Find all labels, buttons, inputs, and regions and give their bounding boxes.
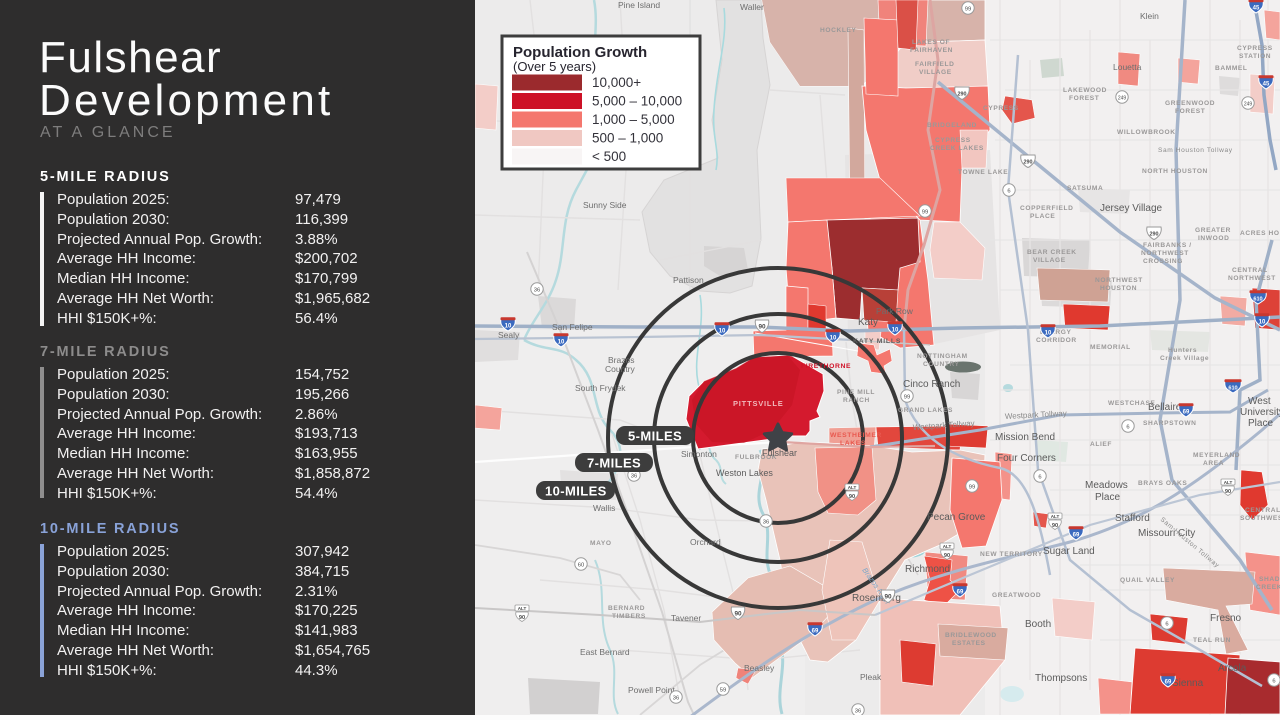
svg-text:Pattison: Pattison (673, 275, 704, 285)
svg-text:SHADOW: SHADOW (1259, 576, 1280, 583)
svg-text:Arcola: Arcola (1218, 663, 1247, 674)
svg-text:NEW TERRITORY: NEW TERRITORY (980, 551, 1043, 558)
svg-text:FOREST: FOREST (1069, 95, 1099, 102)
svg-text:Park Row: Park Row (876, 306, 914, 316)
svg-text:NORTH HOUSTON: NORTH HOUSTON (1142, 168, 1208, 175)
svg-text:GREATWOOD: GREATWOOD (992, 592, 1041, 599)
svg-text:FAIRHAVEN: FAIRHAVEN (910, 47, 953, 54)
svg-text:GRAND LAKES: GRAND LAKES (898, 407, 953, 414)
svg-text:VILLAGE: VILLAGE (919, 69, 952, 76)
svg-text:University: University (1240, 407, 1280, 418)
svg-text:Jersey Village: Jersey Village (1100, 203, 1163, 214)
svg-text:PLACE: PLACE (1030, 213, 1055, 220)
svg-text:Sugar Land: Sugar Land (1043, 546, 1095, 557)
svg-text:COUNTRY: COUNTRY (923, 361, 960, 368)
svg-text:CREEK R: CREEK R (1256, 584, 1280, 591)
svg-text:BRIDGELAND: BRIDGELAND (927, 122, 977, 129)
svg-text:BEAR CREEK: BEAR CREEK (1027, 249, 1077, 256)
svg-text:Creek Village: Creek Village (1160, 355, 1209, 362)
svg-text:Pecan Grove: Pecan Grove (927, 512, 986, 523)
svg-text:NORTHWEST: NORTHWEST (1095, 277, 1143, 284)
svg-text:ESTATES: ESTATES (952, 640, 986, 647)
svg-text:FOREST: FOREST (1175, 108, 1205, 115)
svg-text:Beasley: Beasley (744, 663, 775, 673)
svg-text:Tavener: Tavener (671, 613, 701, 623)
svg-text:Sealy: Sealy (498, 330, 520, 340)
svg-text:KATY MILLS: KATY MILLS (853, 338, 901, 345)
svg-text:QUAIL VALLEY: QUAIL VALLEY (1120, 577, 1175, 584)
svg-text:Stafford: Stafford (1115, 513, 1150, 524)
svg-text:HOCKLEY: HOCKLEY (820, 27, 856, 34)
svg-text:Fulshear: Fulshear (762, 448, 797, 458)
svg-text:Katy: Katy (858, 317, 878, 328)
svg-text:MEYERLAND: MEYERLAND (1193, 452, 1240, 459)
svg-text:AREA: AREA (1203, 460, 1224, 467)
svg-text:GREATER: GREATER (1195, 227, 1231, 234)
svg-text:10-MILES: 10-MILES (545, 483, 607, 498)
svg-text:Richmond: Richmond (905, 564, 950, 575)
svg-text:Orchard: Orchard (690, 537, 721, 547)
svg-text:NORTHWEST: NORTHWEST (1228, 275, 1276, 282)
svg-text:MAYO: MAYO (590, 540, 612, 547)
svg-text:TOWNE LAKE: TOWNE LAKE (958, 169, 1008, 176)
svg-text:Fresno: Fresno (1210, 613, 1242, 624)
svg-text:NORTHWEST: NORTHWEST (1141, 250, 1189, 257)
svg-text:CYPRESS: CYPRESS (1237, 45, 1273, 52)
svg-text:7-MILES: 7-MILES (587, 455, 641, 470)
svg-text:East Bernard: East Bernard (580, 647, 630, 657)
svg-text:(Over 5 years): (Over 5 years) (513, 59, 596, 74)
svg-text:Simonton: Simonton (681, 449, 717, 459)
svg-text:Sam Houston Tollway: Sam Houston Tollway (1158, 147, 1233, 154)
svg-text:WILLOWBROOK: WILLOWBROOK (1117, 129, 1176, 136)
svg-text:< 500: < 500 (592, 149, 626, 164)
svg-text:Sienna: Sienna (1172, 678, 1204, 689)
svg-text:Powell Point: Powell Point (628, 685, 675, 695)
svg-text:TIMBERS: TIMBERS (612, 613, 646, 620)
svg-text:SOUTHWES: SOUTHWES (1240, 515, 1280, 522)
svg-text:San Felipe: San Felipe (552, 322, 593, 332)
svg-text:LAKES: LAKES (840, 440, 866, 447)
svg-text:Sunny Side: Sunny Side (583, 200, 627, 210)
svg-text:South Frydek: South Frydek (575, 383, 626, 393)
svg-text:WESTHEIMER: WESTHEIMER (830, 432, 882, 439)
svg-text:CROSSING: CROSSING (1143, 258, 1183, 265)
svg-text:BERNARD: BERNARD (608, 605, 645, 612)
svg-text:Pleak: Pleak (860, 672, 882, 682)
svg-text:Cinco Ranch: Cinco Ranch (903, 379, 960, 390)
svg-text:RANCH: RANCH (843, 397, 870, 404)
svg-text:COPPERFIELD: COPPERFIELD (1020, 205, 1074, 212)
svg-text:West: West (1248, 396, 1271, 407)
svg-text:ACRES HOME: ACRES HOME (1240, 230, 1280, 237)
svg-text:CENTRAL: CENTRAL (1245, 507, 1280, 514)
svg-text:Mission Bend: Mission Bend (995, 432, 1055, 443)
svg-text:PINE MILL: PINE MILL (837, 389, 875, 396)
svg-text:1,000 – 5,000: 1,000 – 5,000 (592, 112, 675, 127)
svg-text:CYPRESS: CYPRESS (983, 105, 1019, 112)
svg-text:MEMORIAL: MEMORIAL (1090, 344, 1131, 351)
svg-text:5,000 – 10,000: 5,000 – 10,000 (592, 94, 682, 109)
svg-text:CENTRAL: CENTRAL (1232, 267, 1268, 274)
svg-text:CREEK LAKES: CREEK LAKES (930, 145, 984, 152)
svg-text:Meadows: Meadows (1085, 480, 1128, 491)
svg-text:STATION: STATION (1239, 53, 1271, 60)
svg-text:Place: Place (1095, 492, 1120, 503)
svg-text:SATSUMA: SATSUMA (1067, 185, 1103, 192)
svg-text:FAIRBANKS /: FAIRBANKS / (1143, 242, 1192, 249)
svg-text:Weston Lakes: Weston Lakes (716, 468, 773, 478)
svg-text:Waller: Waller (740, 2, 764, 12)
svg-text:Country: Country (605, 364, 636, 374)
svg-text:SHARPSTOWN: SHARPSTOWN (1143, 420, 1197, 427)
svg-text:BAMMEL: BAMMEL (1215, 65, 1248, 72)
svg-text:Place: Place (1248, 418, 1273, 429)
svg-text:TEAL RUN: TEAL RUN (1193, 637, 1231, 644)
svg-text:FAIRFIELD: FAIRFIELD (915, 61, 954, 68)
svg-text:Thompsons: Thompsons (1035, 673, 1087, 684)
svg-text:ALIEF: ALIEF (1090, 441, 1112, 448)
svg-text:Four Corners: Four Corners (997, 453, 1056, 464)
svg-text:Pine Island: Pine Island (618, 0, 660, 10)
svg-text:Klein: Klein (1140, 11, 1159, 21)
svg-text:GREENWOOD: GREENWOOD (1165, 100, 1215, 107)
svg-text:INWOOD: INWOOD (1198, 235, 1229, 242)
svg-text:BRIDLEWOOD: BRIDLEWOOD (945, 632, 997, 639)
svg-text:WESTCHASE: WESTCHASE (1108, 400, 1156, 407)
svg-text:10,000+: 10,000+ (592, 75, 641, 90)
svg-text:PITTSVILLE: PITTSVILLE (733, 399, 784, 408)
svg-text:CYPRESS: CYPRESS (935, 137, 971, 144)
svg-text:Hunters: Hunters (1168, 347, 1197, 354)
svg-text:BRAYS OAKS: BRAYS OAKS (1138, 480, 1187, 487)
svg-text:500 – 1,000: 500 – 1,000 (592, 131, 663, 146)
svg-text:5-MILES: 5-MILES (628, 428, 682, 443)
svg-text:Wallis: Wallis (593, 503, 615, 513)
svg-text:Louetta: Louetta (1113, 62, 1142, 72)
svg-text:VILLAGE: VILLAGE (1033, 257, 1066, 264)
svg-text:FIRETHORNE: FIRETHORNE (801, 363, 851, 370)
svg-text:CORRIDOR: CORRIDOR (1036, 337, 1077, 344)
svg-text:LAKES OF: LAKES OF (912, 39, 950, 46)
svg-text:NOTTINGHAM: NOTTINGHAM (917, 353, 968, 360)
svg-text:HOUSTON: HOUSTON (1100, 285, 1137, 292)
svg-text:Booth: Booth (1025, 619, 1051, 630)
svg-text:LAKEWOOD: LAKEWOOD (1063, 87, 1107, 94)
